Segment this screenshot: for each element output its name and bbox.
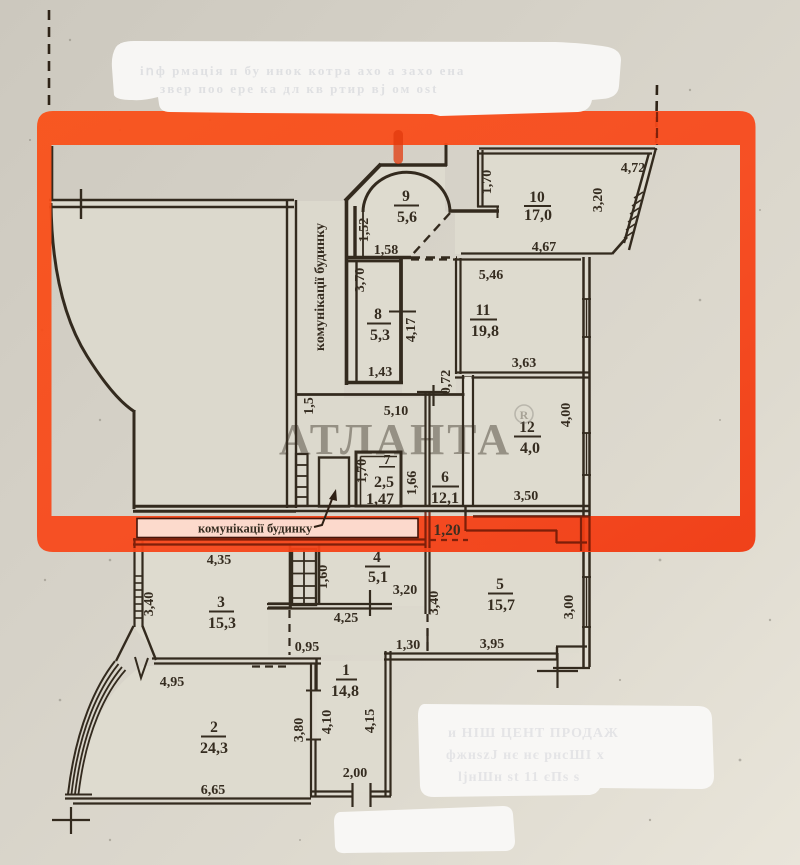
svg-text:комунікації будинку: комунікації будинку [198, 522, 313, 536]
svg-text:1,43: 1,43 [368, 365, 393, 380]
svg-text:1,5: 1,5 [302, 397, 317, 415]
svg-text:2: 2 [210, 719, 218, 736]
svg-text:4,17: 4,17 [404, 318, 419, 343]
svg-text:3,00: 3,00 [562, 595, 577, 620]
svg-text:5,3: 5,3 [370, 327, 390, 344]
svg-text:1,47: 1,47 [366, 491, 394, 508]
svg-text:4,10: 4,10 [320, 710, 335, 735]
svg-text:іոф рмація п бу инок котра: іոф рмація п бу инок котра ахо a зaxo ен… [140, 63, 465, 78]
svg-text:24,3: 24,3 [200, 740, 228, 757]
svg-text:3,50: 3,50 [514, 489, 539, 504]
svg-text:4,15: 4,15 [363, 709, 378, 734]
svg-text:1: 1 [342, 662, 350, 679]
svg-text:0,72: 0,72 [439, 370, 454, 395]
svg-text:3,20: 3,20 [591, 188, 606, 213]
svg-text:ljнШн st 11 єПs s: ljнШн st 11 єПs s [458, 770, 580, 785]
svg-text:1,66: 1,66 [405, 471, 420, 496]
svg-text:3,95: 3,95 [480, 637, 505, 652]
svg-text:и НІШ ЦЕНТ ПРОДАЖ: и НІШ ЦЕНТ ПРОДАЖ [448, 726, 619, 741]
svg-text:1,52: 1,52 [357, 218, 372, 243]
svg-text:3,40: 3,40 [427, 591, 442, 616]
svg-text:4,72: 4,72 [621, 161, 646, 176]
svg-text:6: 6 [441, 469, 449, 486]
svg-text:4,67: 4,67 [532, 240, 557, 255]
svg-text:звep поо epe ка дл кв р: звep поо epe ка дл кв ртир вj ом ost [160, 81, 438, 96]
svg-text:3,20: 3,20 [393, 583, 418, 598]
svg-text:1,60: 1,60 [316, 565, 331, 590]
svg-text:4,25: 4,25 [334, 611, 359, 626]
svg-text:5: 5 [496, 576, 504, 593]
svg-text:15,3: 15,3 [208, 615, 236, 632]
svg-text:12,1: 12,1 [431, 490, 459, 507]
svg-text:0,95: 0,95 [295, 640, 320, 655]
svg-text:10: 10 [529, 189, 545, 206]
svg-text:5,1: 5,1 [368, 569, 388, 586]
svg-text:5,46: 5,46 [479, 268, 504, 283]
svg-text:фжнszJ нє нє рнсШІ х: фжнszJ нє нє рнсШІ х [446, 748, 605, 763]
svg-text:1,58: 1,58 [374, 243, 399, 258]
svg-text:АТЛАНТА: АТЛАНТА [279, 415, 512, 464]
svg-text:5,6: 5,6 [397, 209, 417, 226]
svg-text:3: 3 [217, 594, 225, 611]
svg-text:3,70: 3,70 [353, 268, 368, 293]
svg-text:1,30: 1,30 [396, 638, 421, 653]
svg-text:3,63: 3,63 [512, 356, 537, 371]
svg-text:1,20: 1,20 [433, 522, 460, 539]
svg-text:2,5: 2,5 [374, 474, 394, 491]
svg-text:1,70: 1,70 [480, 170, 495, 195]
svg-text:9: 9 [402, 188, 410, 205]
svg-text:2,00: 2,00 [343, 766, 368, 781]
svg-text:3,80: 3,80 [292, 718, 307, 743]
svg-text:4,35: 4,35 [207, 553, 232, 568]
svg-text:4,0: 4,0 [520, 440, 540, 457]
svg-text:6,65: 6,65 [201, 783, 226, 798]
svg-text:4,95: 4,95 [160, 675, 185, 690]
svg-text:8: 8 [374, 306, 382, 323]
svg-text:R: R [520, 408, 529, 422]
svg-text:11: 11 [476, 302, 491, 319]
svg-text:15,7: 15,7 [487, 597, 515, 614]
svg-text:19,8: 19,8 [471, 323, 499, 340]
svg-text:17,0: 17,0 [524, 207, 552, 224]
svg-text:3,40: 3,40 [142, 592, 157, 617]
svg-text:14,8: 14,8 [331, 683, 359, 700]
svg-text:4,00: 4,00 [559, 403, 574, 428]
svg-text:комунікації будинку: комунікації будинку [313, 223, 328, 351]
